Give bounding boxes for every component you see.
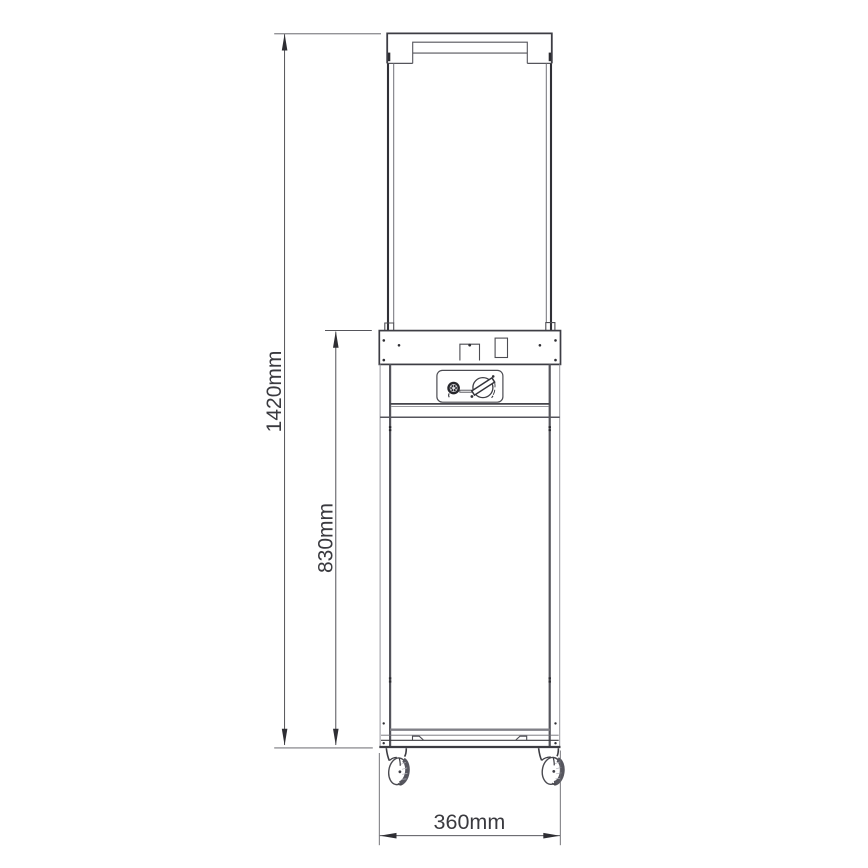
svg-text:830mm: 830mm	[315, 503, 338, 573]
svg-text:1420mm: 1420mm	[263, 351, 286, 433]
svg-text:360mm: 360mm	[434, 810, 506, 834]
